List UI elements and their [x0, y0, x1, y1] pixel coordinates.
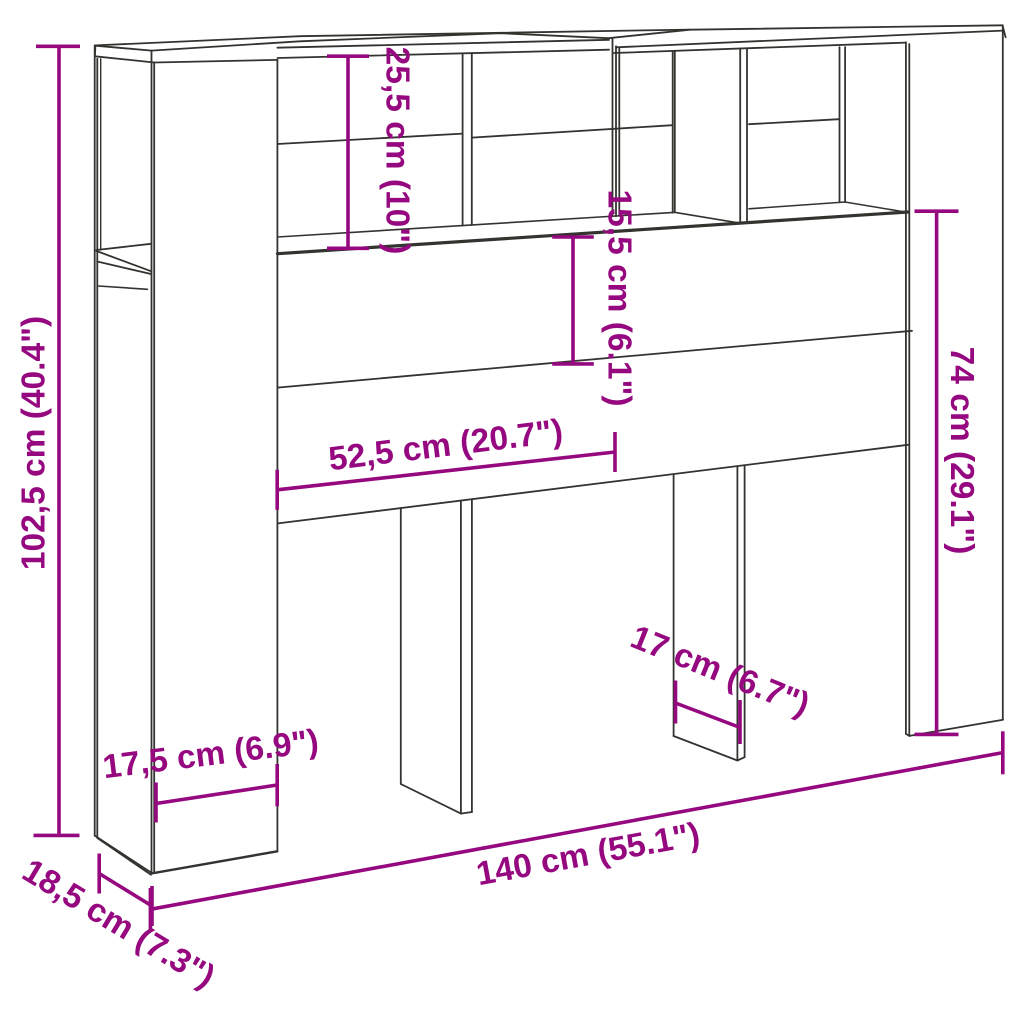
svg-text:74 cm (29.1"): 74 cm (29.1"): [943, 347, 980, 555]
svg-text:25,5 cm (10"): 25,5 cm (10"): [379, 47, 416, 255]
svg-text:15,5 cm (6.1"): 15,5 cm (6.1"): [601, 190, 638, 407]
svg-text:102,5 cm (40.4"): 102,5 cm (40.4"): [15, 316, 52, 570]
